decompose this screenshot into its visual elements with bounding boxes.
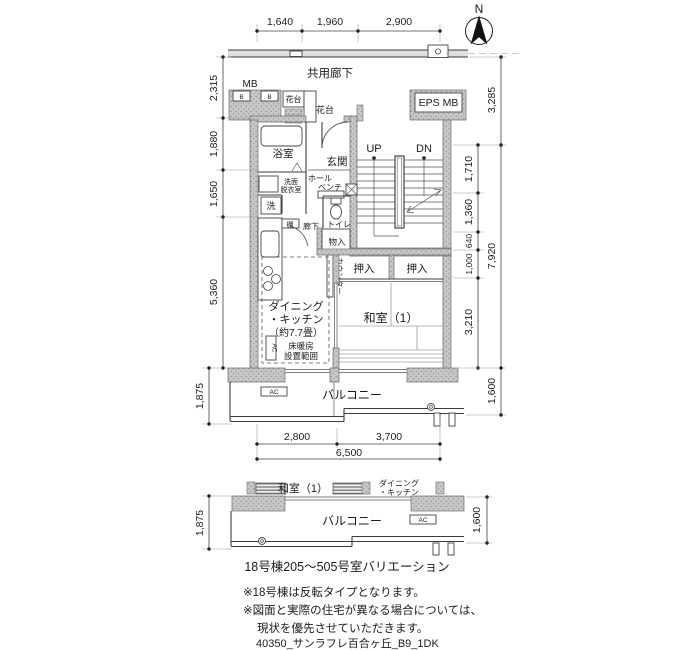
variation-floor-plan: 和室（1） ダイニング ・キッチン バルコニー AC 1,875 1,600 bbox=[194, 478, 492, 555]
hallway-label: 廊下 bbox=[303, 221, 319, 231]
plan-caption: 18号棟205〜505号室バリエーション bbox=[244, 559, 449, 574]
closet-left-label: 押入 bbox=[354, 262, 375, 275]
dim-bottom-3: 6,500 bbox=[336, 447, 362, 459]
toilet-tank bbox=[331, 198, 341, 204]
dim-right-inner-4: 1,000 bbox=[464, 253, 474, 275]
dk-label-3: （約7.7畳） bbox=[269, 326, 323, 339]
dim-left-1: 2,315 bbox=[208, 75, 220, 101]
counter-strip bbox=[327, 255, 333, 297]
variation-washitsu-label: 和室（1） bbox=[278, 481, 328, 495]
b-box-left-label: B bbox=[239, 94, 243, 101]
washroom-label-2: 脱衣室 bbox=[281, 185, 302, 194]
washitsu-label: 和室（1） bbox=[364, 310, 419, 325]
planter-box-label: 花台 bbox=[286, 94, 302, 104]
top-dimensions: 1,640 1,960 2,900 bbox=[255, 16, 441, 42]
bath-label: 浴室 bbox=[273, 147, 294, 160]
drawing-id-footer: 40350_サンラフレ百合ヶ丘_B9_1DK bbox=[256, 636, 439, 650]
washbasin bbox=[259, 176, 278, 192]
common-corridor: 共用廊下 bbox=[228, 45, 522, 80]
note-line-2: ※図面と実際の住宅が異なる場合については、 bbox=[243, 603, 482, 617]
ac-balcony-label: AC bbox=[269, 389, 278, 396]
dim-right-inner-3: 640 bbox=[464, 234, 474, 248]
dim-top-1: 1,640 bbox=[267, 16, 293, 28]
pipe bbox=[448, 543, 454, 555]
variation-dk-label-1: ダイニング bbox=[379, 478, 419, 488]
variation-dim-left: 1,875 bbox=[194, 510, 206, 536]
washroom: 洗面 脱衣室 洗 bbox=[258, 176, 302, 214]
hall-label: ホール bbox=[308, 174, 332, 183]
dim-right-outer-2: 7,920 bbox=[486, 243, 498, 269]
washitsu-room: 和室（1） bbox=[339, 283, 443, 362]
note-line-3: 現状を優先させていただきます。 bbox=[257, 621, 428, 635]
dim-left-5: 1,875 bbox=[194, 383, 206, 409]
entrance-label: 玄関 bbox=[327, 155, 348, 168]
window-strip bbox=[333, 483, 363, 494]
closet-right-label: 押入 bbox=[407, 262, 428, 275]
variation-balcony-label: バルコニー bbox=[322, 514, 382, 528]
note-line-1: ※18号棟は反転タイプとなります。 bbox=[243, 585, 425, 599]
toilet-room: トイレ bbox=[323, 196, 351, 229]
variation-dk-label-2: ・キッチン bbox=[379, 488, 419, 497]
dk-label-1: ダイニング bbox=[269, 299, 324, 313]
staircase: UP DN bbox=[357, 143, 443, 236]
dk-label-2: ・キッチン bbox=[269, 313, 324, 326]
dim-left-2: 1,880 bbox=[208, 131, 220, 157]
drain bbox=[259, 538, 266, 545]
mb-label: MB bbox=[243, 79, 258, 90]
dim-bottom-2: 3,700 bbox=[376, 431, 402, 443]
floor-heating-label-1: 床暖房 bbox=[288, 341, 314, 351]
dim-left-4: 5,360 bbox=[208, 279, 220, 305]
floor-heating-label-2: 設置範囲 bbox=[284, 351, 318, 361]
dim-top-2: 1,960 bbox=[317, 16, 343, 28]
drain bbox=[428, 404, 435, 411]
balcony-label: バルコニー bbox=[322, 388, 382, 402]
pipe bbox=[433, 543, 439, 555]
dim-right-inner-2: 1,360 bbox=[463, 199, 475, 225]
bathtub bbox=[261, 126, 302, 146]
planter-side-label: 花台 bbox=[316, 104, 334, 115]
balcony: AC バルコニー bbox=[228, 368, 464, 426]
north-compass-icon: N bbox=[466, 2, 493, 45]
variation-dim-right: 1,600 bbox=[471, 507, 483, 533]
storage-label: 物入 bbox=[328, 237, 346, 247]
dim-top-3: 2,900 bbox=[386, 16, 412, 28]
pipe bbox=[434, 413, 440, 426]
floor-plan-page: N 1,640 1,960 2,900 共用廊下 B B MB bbox=[0, 0, 700, 650]
dim-right-inner-5: 3,210 bbox=[463, 309, 475, 335]
washroom-label-1: 洗面 bbox=[284, 177, 298, 186]
stairs-down-label: DN bbox=[416, 143, 432, 155]
dim-right-outer-1: 3,285 bbox=[486, 87, 498, 113]
variation-ac-label: AC bbox=[418, 517, 427, 524]
toilet-bowl bbox=[331, 205, 342, 219]
toilet-label: トイレ bbox=[327, 220, 351, 229]
kitchen-sink bbox=[261, 231, 279, 257]
ac-wall-label: AC bbox=[271, 343, 278, 352]
entrance-door bbox=[322, 122, 348, 148]
pipe bbox=[449, 413, 455, 426]
dim-right-outer-3: 1,600 bbox=[486, 378, 498, 404]
bottom-dimensions: 2,800 3,700 6,500 bbox=[255, 418, 441, 463]
dim-bottom-1: 2,800 bbox=[284, 431, 310, 443]
stairs-up-label: UP bbox=[366, 143, 381, 155]
corridor-label: 共用廊下 bbox=[307, 66, 353, 80]
floor-plan-drawing: N 1,640 1,960 2,900 共用廊下 B B MB bbox=[0, 0, 700, 650]
bench bbox=[318, 191, 344, 198]
bath-folding-door bbox=[292, 163, 302, 171]
pipe-shaft bbox=[346, 184, 357, 195]
eps-mb-label: EPS MB bbox=[419, 97, 459, 109]
main-floor-plan: B B MB 花台 花台 EPS MB 浴室 bbox=[228, 79, 466, 426]
washer-label: 洗 bbox=[266, 200, 275, 211]
dim-left-3: 1,650 bbox=[208, 181, 220, 207]
b-box-right-label: B bbox=[267, 94, 271, 101]
compass-north-label: N bbox=[475, 2, 484, 16]
shelf-label: 棚 bbox=[287, 220, 294, 229]
dim-right-inner-1: 1,710 bbox=[463, 156, 475, 182]
